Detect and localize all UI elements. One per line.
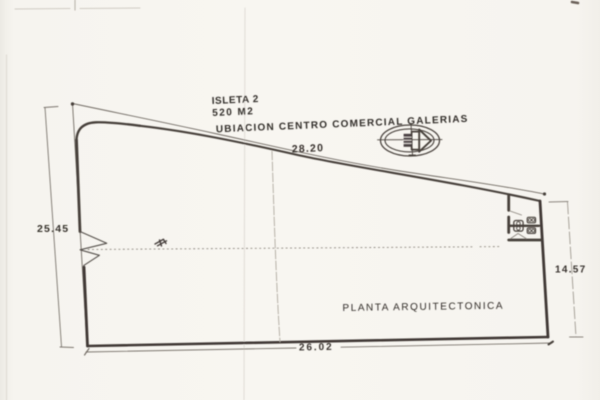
svg-text:ISLETA 2: ISLETA 2 xyxy=(211,94,259,107)
svg-text:14.57: 14.57 xyxy=(555,265,587,276)
svg-text:520 M2: 520 M2 xyxy=(212,106,254,119)
svg-text:PLANTA ARQUITECTONICA: PLANTA ARQUITECTONICA xyxy=(342,301,504,314)
svg-text:28.20: 28.20 xyxy=(292,142,325,155)
svg-text:25.45: 25.45 xyxy=(37,223,69,235)
svg-text:26.02: 26.02 xyxy=(299,342,334,354)
